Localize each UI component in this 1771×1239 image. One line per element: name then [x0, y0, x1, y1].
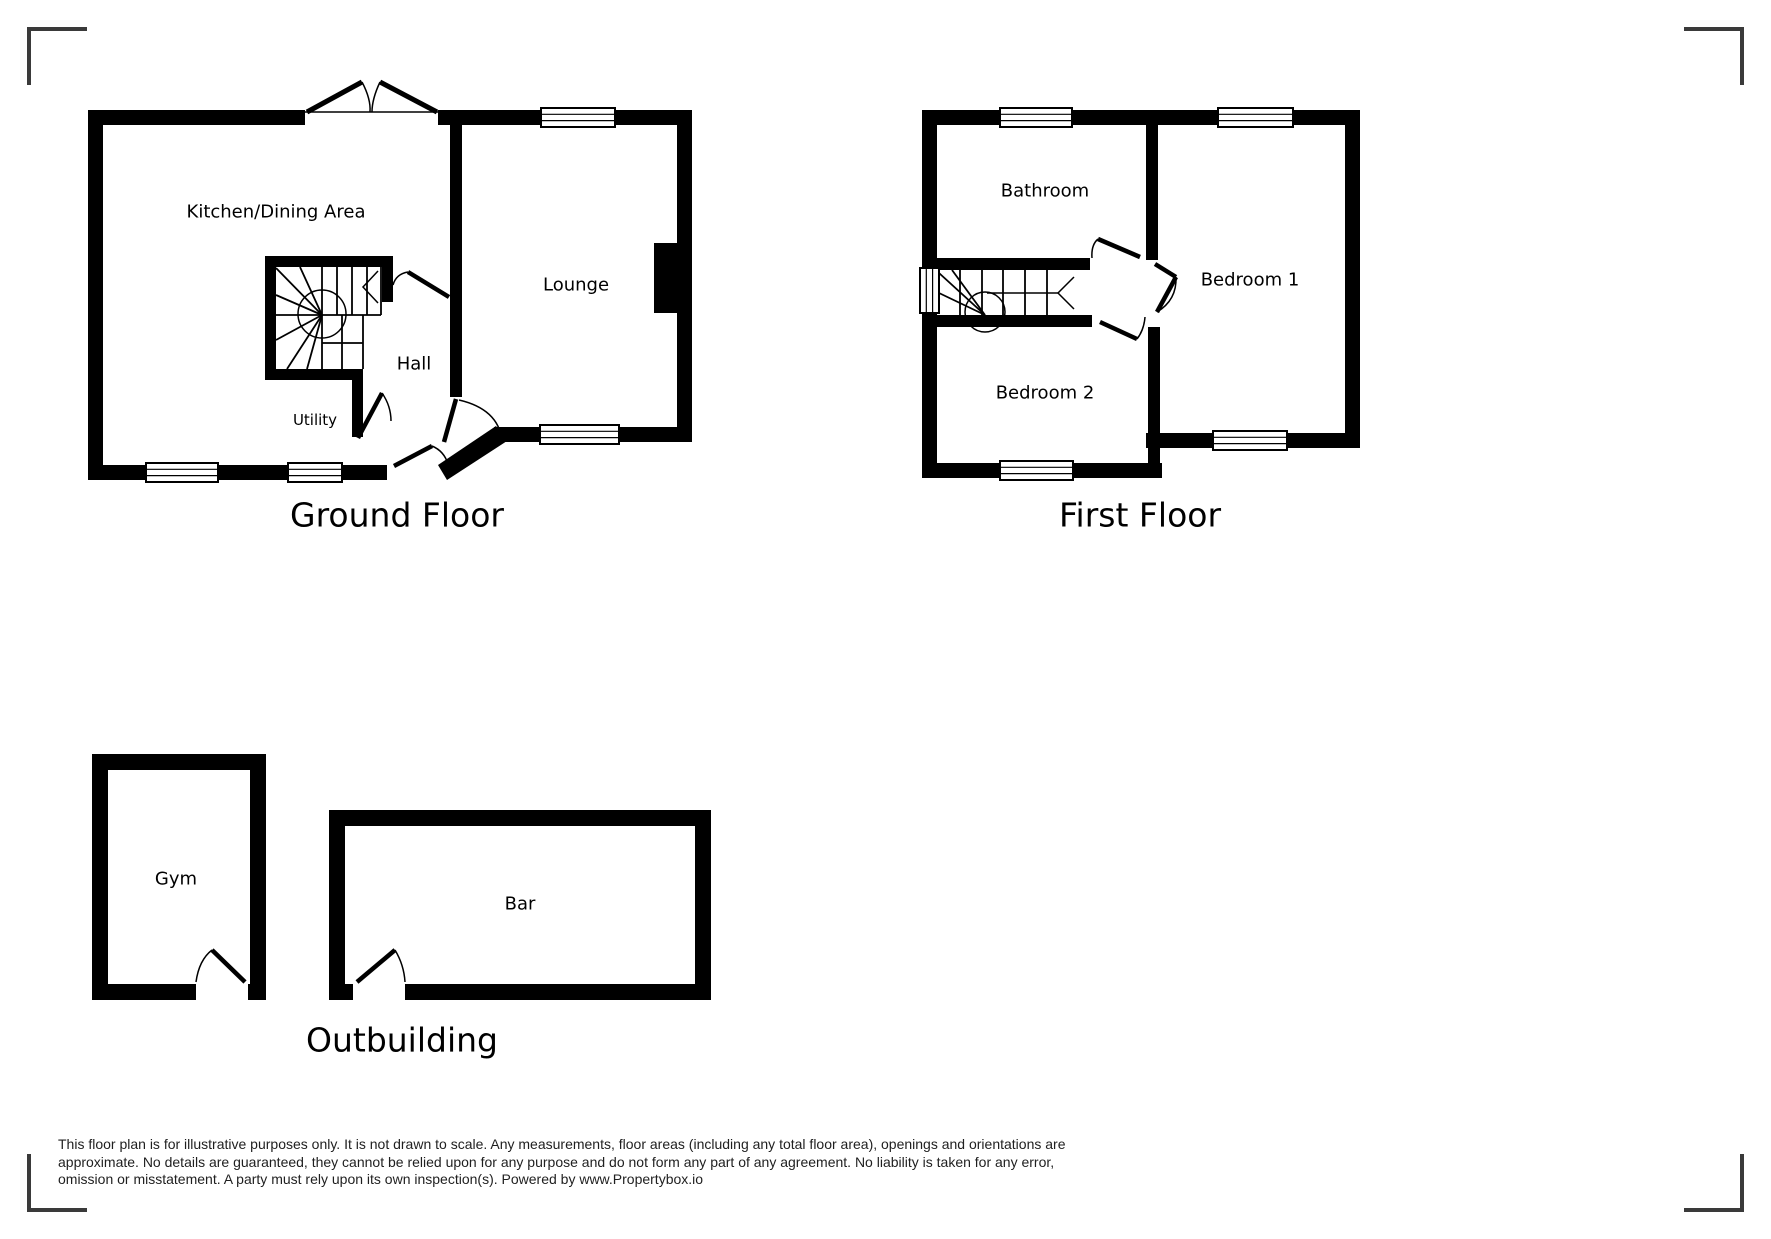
disclaimer-line: approximate. No details are guaranteed, … — [58, 1154, 1178, 1172]
lounge-top-window — [541, 108, 615, 127]
gym-door — [196, 950, 245, 982]
landing-window — [920, 268, 939, 313]
floor-plan-drawing — [0, 0, 1771, 1239]
kitchen-window — [146, 463, 218, 482]
room-label-gym: Gym — [155, 869, 197, 890]
ground-floor-title: Ground Floor — [290, 496, 504, 535]
disclaimer-line: This floor plan is for illustrative purp… — [58, 1136, 1178, 1154]
fireplace-block — [654, 243, 680, 313]
bedroom1-top-window — [1218, 108, 1293, 127]
room-label-kitchen: Kitchen/Dining Area — [187, 202, 366, 223]
first-floor-walls — [922, 110, 1360, 478]
corner-mark-top-left — [29, 29, 87, 85]
first-floor-doors — [1092, 239, 1176, 339]
lounge-bottom-window — [540, 425, 619, 444]
room-label-bathroom: Bathroom — [1001, 181, 1089, 202]
room-label-utility: Utility — [293, 411, 337, 429]
stairs-door — [393, 272, 449, 297]
floor-plan-canvas: Kitchen/Dining Area Lounge Hall Utility … — [0, 0, 1771, 1239]
bathroom-window — [1000, 108, 1072, 127]
first-floor-title: First Floor — [1059, 496, 1221, 535]
ground-floor-doors — [305, 82, 502, 466]
bay-double-door — [305, 82, 438, 112]
bedroom1-door — [1155, 264, 1176, 312]
stairs-direction-arrow — [363, 271, 378, 303]
stairs-direction-arrow — [1058, 277, 1074, 309]
front-door — [394, 446, 448, 466]
room-label-bedroom2: Bedroom 2 — [996, 383, 1095, 404]
outbuilding-title: Outbuilding — [306, 1021, 498, 1060]
corner-mark-bottom-right — [1684, 1154, 1742, 1210]
ground-floor-staircase — [276, 267, 381, 369]
disclaimer-text: This floor plan is for illustrative purp… — [58, 1136, 1178, 1189]
bathroom-door — [1092, 239, 1140, 258]
disclaimer-line: omission or misstatement. A party must r… — [58, 1171, 1178, 1189]
room-label-bedroom1: Bedroom 1 — [1201, 270, 1300, 291]
corner-mark-top-right — [1684, 29, 1742, 85]
first-floor-plan — [920, 108, 1360, 480]
bedroom2-bottom-window — [1000, 461, 1073, 480]
bedroom1-bottom-window — [1213, 431, 1287, 450]
room-label-bar: Bar — [505, 894, 536, 915]
bedroom2-door — [1100, 317, 1145, 339]
room-label-lounge: Lounge — [543, 275, 609, 296]
bar-door — [357, 950, 405, 982]
room-label-hall: Hall — [397, 354, 432, 375]
utility-window — [288, 463, 342, 482]
